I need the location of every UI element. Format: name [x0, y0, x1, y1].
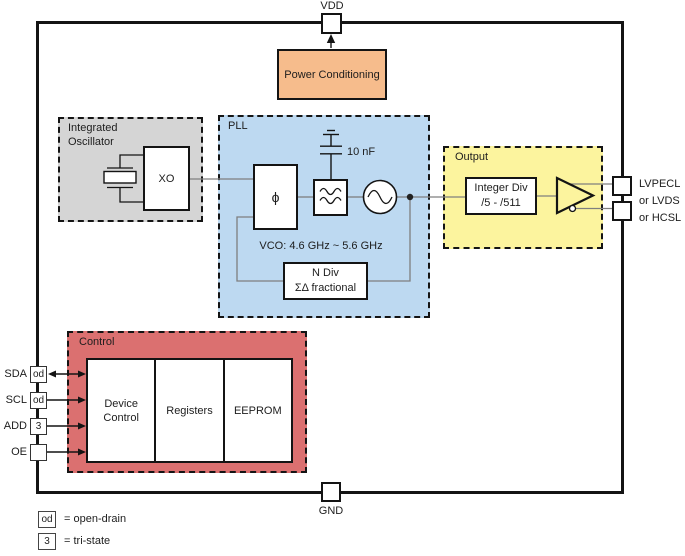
loop-filter-block	[313, 179, 348, 216]
legend-tri-state-text: = tri-state	[64, 535, 110, 547]
device-control-block: Device Control	[88, 360, 154, 461]
legend-open-drain-badge: od	[38, 511, 56, 528]
gnd-label: GND	[309, 505, 353, 517]
pin-label-scl: SCL	[0, 394, 27, 406]
pin-pad-oe	[30, 444, 47, 461]
output-signal-label-2: or LVDS	[639, 195, 680, 207]
legend-open-drain-text: = open-drain	[64, 513, 126, 525]
power-conditioning-label: Power Conditioning	[284, 68, 379, 82]
pin-pad-scl: od	[30, 392, 47, 409]
output-label: Output	[455, 151, 488, 163]
vdd-label: VDD	[310, 0, 354, 12]
registers-block: Registers	[154, 360, 222, 461]
legend-tri-state-badge: 3	[38, 533, 56, 550]
n-divider-block: N Div ΣΔ fractional	[283, 262, 368, 300]
pin-pad-sda: od	[30, 366, 47, 383]
n-divider-label: N Div ΣΔ fractional	[295, 266, 356, 296]
phase-detector-block: ϕ	[253, 164, 298, 230]
capacitor-value-label: 10 nF	[347, 146, 375, 158]
clock-generator-block-diagram: VDD Power Conditioning Integrated Oscill…	[0, 0, 685, 556]
pll-label: PLL	[228, 120, 248, 132]
output-signal-label-3: or HCSL	[639, 212, 681, 224]
pin-pad-add: 3	[30, 418, 47, 435]
pin-label-oe: OE	[0, 446, 27, 458]
vco-range-label: VCO: 4.6 GHz ~ 5.6 GHz	[221, 240, 421, 252]
phase-detector-symbol: ϕ	[272, 190, 280, 204]
output-pad-1	[612, 176, 632, 196]
control-label: Control	[79, 336, 114, 348]
gnd-pad	[321, 482, 341, 502]
power-conditioning-block: Power Conditioning	[277, 49, 387, 100]
integrated-oscillator-label: Integrated Oscillator	[68, 121, 146, 149]
output-pad-2	[612, 201, 632, 221]
vdd-pad	[321, 13, 342, 34]
output-signal-label-1: LVPECL	[639, 178, 680, 190]
xo-label: XO	[159, 172, 175, 186]
eeprom-block: EEPROM	[223, 360, 291, 461]
pin-label-sda: SDA	[0, 368, 27, 380]
xo-block: XO	[143, 146, 190, 211]
integer-divider-block: Integer Div /5 - /511	[465, 177, 537, 215]
pin-label-add: ADD	[0, 420, 27, 432]
integer-divider-label: Integer Div /5 - /511	[474, 181, 527, 211]
control-inner-blocks: Device Control Registers EEPROM	[86, 358, 293, 463]
